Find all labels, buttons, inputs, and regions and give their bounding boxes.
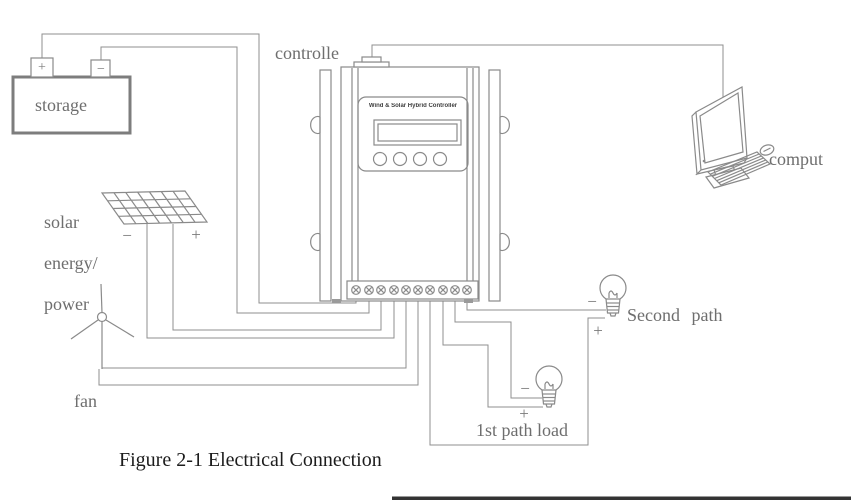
solar-label-line1: solar: [44, 213, 79, 231]
second-path-plus-mark: +: [589, 322, 607, 339]
figure-caption: Figure 2-1 Electrical Connection: [119, 449, 382, 472]
solar-panel: [102, 191, 207, 224]
turbine-hub: [98, 313, 107, 322]
battery-minus-mark: −: [94, 63, 108, 77]
wire-fan-a: [102, 299, 406, 368]
mount-ear-icon: [500, 117, 509, 134]
controller-button: [394, 153, 407, 166]
first-path-minus-mark: −: [516, 380, 534, 397]
controller-foot: [464, 299, 473, 303]
battery-plus-mark: +: [35, 61, 49, 75]
mount-ear-icon: [500, 234, 509, 251]
controller-button: [434, 153, 447, 166]
figure-canvas: controlle storage solar energy/ power fa…: [0, 0, 851, 500]
controller-button: [374, 153, 387, 166]
fan-label: fan: [74, 392, 97, 410]
solar-minus-mark: −: [118, 227, 136, 244]
first-path-bulb: [536, 366, 562, 407]
controller-title: Wind & Solar Hybrid Controller: [358, 103, 468, 109]
controller-label: controlle: [275, 44, 339, 62]
mount-ear-icon: [311, 234, 320, 251]
diagram-artwork: [0, 0, 851, 500]
controller-top-connector: [354, 62, 389, 67]
first-path-plus-mark: +: [515, 405, 533, 422]
turbine-blade-up: [101, 284, 102, 313]
solar-label-line3: power: [44, 295, 89, 313]
controller-bracket-right: [489, 70, 500, 301]
controller-top-connector-cap: [362, 57, 381, 62]
storage-label: storage: [35, 96, 87, 114]
solar-plus-mark: +: [187, 226, 205, 243]
turbine-blade-right: [106, 320, 134, 337]
second-path-label: Second path: [627, 306, 722, 324]
controller-button: [414, 153, 427, 166]
first-path-label: 1st path load: [476, 421, 568, 439]
monitor-power-dot: [703, 160, 706, 163]
computer: [692, 87, 775, 188]
controller-bracket-left: [320, 70, 331, 301]
second-path-minus-mark: −: [583, 293, 601, 310]
mount-ear-icon: [311, 117, 320, 134]
computer-label: comput: [769, 150, 823, 168]
controller-foot: [332, 299, 341, 303]
controller-device: [311, 57, 510, 303]
monitor-frame: [696, 87, 747, 170]
bottom-edge-bar: [392, 497, 851, 500]
solar-label-line2: energy/: [44, 254, 98, 272]
turbine-blade-left: [71, 320, 98, 339]
